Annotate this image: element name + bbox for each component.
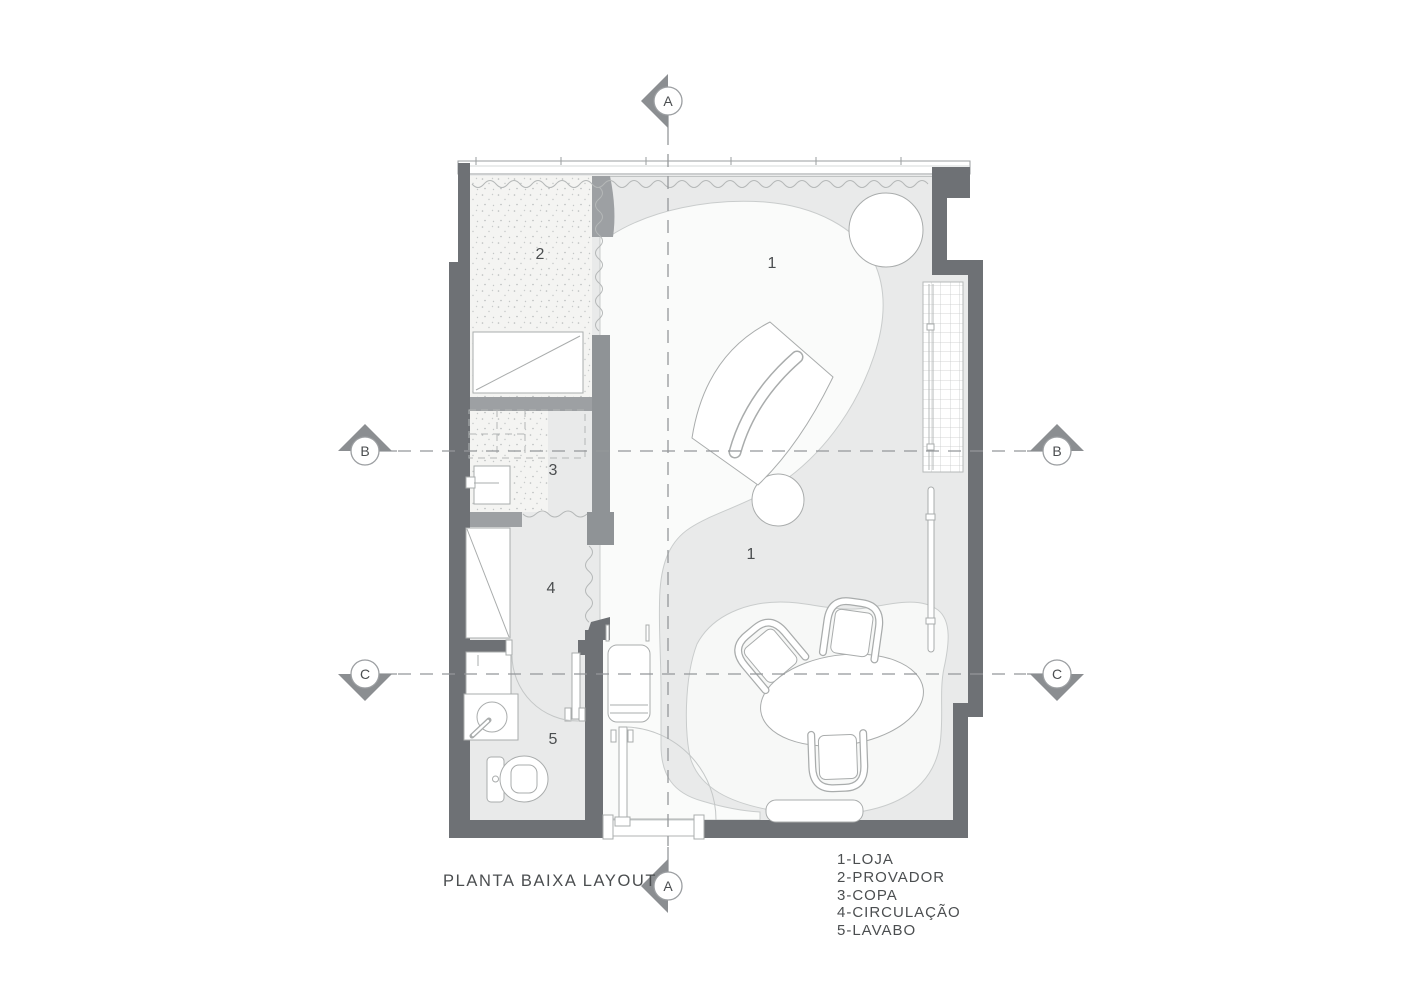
legend-item-lavabo: 5-LAVABO <box>837 922 961 940</box>
legend-item-provador: 2-PROVADOR <box>837 869 961 887</box>
floor-plan-page: A A B B C C 2 1 3 1 4 5 PLANTA BAIXA LAY… <box>0 0 1414 1000</box>
legend-item-loja: 1-LOJA <box>837 851 961 869</box>
room-label-provador: 2 <box>536 246 545 263</box>
legend-item-circulacao: 4-CIRCULAÇÃO <box>837 904 961 922</box>
section-marker-b-right: B <box>1030 424 1084 465</box>
round-table-large <box>849 193 923 267</box>
floor-plan-drawing: A A B B C C 2 1 3 1 4 5 <box>0 0 1414 1000</box>
section-marker-c-right: C <box>1030 660 1084 701</box>
marker-letter-b: B <box>1052 443 1061 459</box>
section-marker-a-top: A <box>641 74 682 128</box>
section-marker-c-left: C <box>338 660 392 701</box>
lavabo-sink <box>464 652 518 740</box>
marker-letter-c: C <box>1052 666 1062 682</box>
room-label-loja-2: 1 <box>747 546 756 563</box>
hanging-rail <box>928 487 934 652</box>
entry-mat <box>766 800 863 822</box>
circulacao-cabinet <box>466 528 510 638</box>
legend: 1-LOJA 2-PROVADOR 3-COPA 4-CIRCULAÇÃO 5-… <box>837 851 961 940</box>
lavabo-right-wall <box>585 630 603 820</box>
room-label-lavabo: 5 <box>549 731 558 748</box>
section-marker-b-left: B <box>338 424 392 465</box>
marker-letter-b: B <box>360 443 369 459</box>
marker-letter-c: C <box>360 666 370 682</box>
legend-item-copa: 3-COPA <box>837 887 961 905</box>
toilet <box>487 756 548 802</box>
storefront-glazing <box>458 157 970 174</box>
room-label-circulacao: 4 <box>547 580 556 597</box>
room-label-copa: 3 <box>549 462 558 479</box>
marker-letter-a: A <box>663 878 673 894</box>
marker-letter-a: A <box>663 93 673 109</box>
provador-bench <box>473 332 583 393</box>
room-label-loja: 1 <box>768 255 777 272</box>
plan-title: PLANTA BAIXA LAYOUT <box>443 872 657 891</box>
